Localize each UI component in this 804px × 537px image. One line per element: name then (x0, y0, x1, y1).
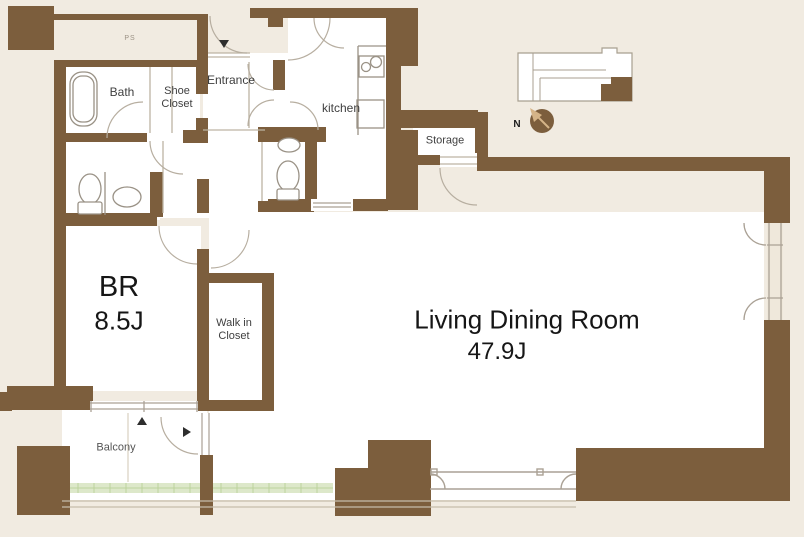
label-bath: Bath (110, 85, 135, 99)
label-balcony: Balcony (96, 442, 135, 455)
key-plan (518, 48, 632, 101)
label-kitchen: kitchen (322, 101, 360, 115)
label-living-dining-size: 47.9J (468, 338, 527, 366)
floor-plan: PS Bath Shoe Closet Entrance kitchen Sto… (0, 0, 804, 537)
floor-plan-drawing (0, 0, 804, 537)
label-bedroom-name: BR (99, 270, 139, 304)
label-shoe-closet: Shoe Closet (156, 85, 198, 111)
label-compass-north: N (513, 119, 520, 131)
compass-icon (530, 108, 554, 133)
entrance-arrow-icon (219, 40, 229, 48)
label-walk-in-closet: Walk in Closet (216, 317, 252, 343)
label-entrance: Entrance (207, 73, 255, 87)
toilet2-icon (277, 138, 300, 200)
label-storage: Storage (426, 135, 465, 148)
toilet-icon (78, 174, 102, 214)
label-living-dining-name: Living Dining Room (414, 305, 639, 336)
bathtub-icon (70, 72, 97, 126)
label-bedroom-size: 8.5J (94, 306, 143, 337)
label-ps: PS (124, 35, 135, 43)
